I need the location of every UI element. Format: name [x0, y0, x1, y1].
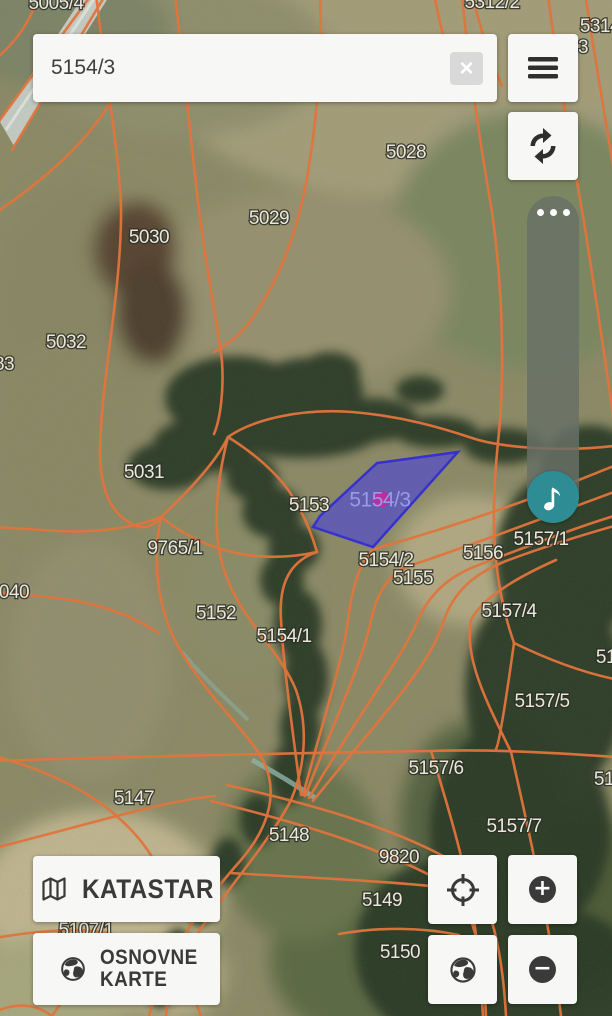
parcel-label: 5153 [289, 495, 329, 516]
hamburger-icon [527, 55, 559, 81]
clear-search-button[interactable]: × [450, 52, 483, 85]
parcel-label: 5157/7 [486, 816, 541, 837]
parcel-label: 5005/4 [28, 0, 84, 14]
cadastral-map-app: 5005/45312/25314350285029503050328350315… [0, 0, 612, 1016]
katastar-button[interactable]: KATASTAR [33, 856, 220, 922]
slider-track[interactable] [527, 196, 579, 496]
parcel-label: 5312/2 [464, 0, 519, 13]
parcel-label: 5149 [362, 890, 402, 911]
refresh-button[interactable] [508, 112, 578, 180]
parcel-label: 5157/5 [514, 691, 569, 712]
search-bar: × [33, 34, 497, 102]
parcel-label: 3 [578, 37, 588, 58]
parcel-label: 5154/1 [256, 626, 311, 647]
parcel-label: 5029 [249, 208, 289, 229]
parcel-label: 51 [594, 769, 612, 790]
locate-button[interactable] [428, 855, 497, 924]
selected-parcel-label: 5154/3 [349, 489, 410, 512]
globe-icon [58, 954, 88, 984]
parcel-label: 5157/4 [481, 601, 537, 622]
basemap-button[interactable] [428, 935, 497, 1004]
parcel-label: 040 [0, 582, 29, 603]
parcel-label: 5152 [196, 603, 236, 624]
plus-icon: + [529, 876, 556, 903]
parcel-label: 9765/1 [147, 538, 202, 559]
layer-opacity-slider[interactable] [527, 196, 579, 523]
parcel-label: 5150 [380, 942, 420, 963]
parcel-label: 9820 [379, 847, 419, 868]
menu-button[interactable] [508, 34, 578, 102]
crosshair-icon [445, 872, 481, 908]
parcel-label: 5030 [129, 227, 169, 248]
search-input[interactable] [33, 56, 450, 80]
parcel-label: 5156 [463, 543, 503, 564]
parcel-label: 5314 [580, 16, 612, 37]
parcel-label: 83 [0, 354, 14, 375]
earth-icon [447, 954, 479, 986]
parcel-label: 5031 [124, 462, 164, 483]
map-icon [38, 875, 70, 903]
refresh-icon [525, 128, 561, 164]
music-note-icon [540, 482, 566, 512]
minus-icon: − [529, 956, 556, 983]
parcel-label: 5155 [393, 568, 433, 589]
zoom-in-button[interactable]: + [508, 855, 577, 924]
osnovne-karte-button[interactable]: OSNOVNE KARTE [33, 933, 220, 1005]
ellipsis-icon [527, 209, 579, 216]
parcel-label: 5147 [114, 788, 154, 809]
katastar-label: KATASTAR [82, 874, 214, 905]
parcel-label: 51 [596, 647, 612, 668]
osnovne-karte-label: OSNOVNE KARTE [100, 947, 198, 991]
parcel-label: 5148 [269, 825, 309, 846]
zoom-out-button[interactable]: − [508, 935, 577, 1004]
parcel-label: 5028 [386, 142, 426, 163]
slider-thumb[interactable] [527, 471, 579, 523]
parcel-label: 5157/1 [513, 529, 568, 550]
parcel-label: 5157/6 [408, 758, 463, 779]
parcel-label: 5032 [46, 332, 86, 353]
